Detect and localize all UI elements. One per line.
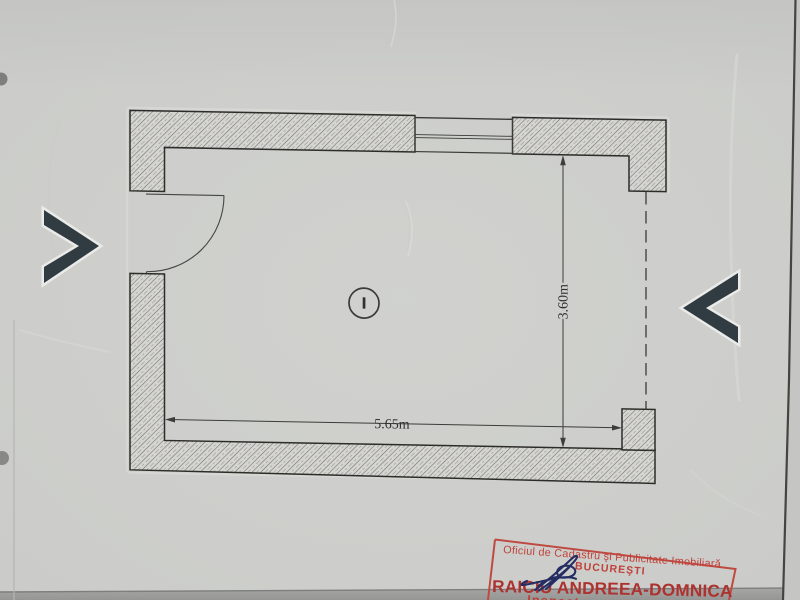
svg-text:3.60m: 3.60m <box>557 284 572 320</box>
svg-text:5.65m: 5.65m <box>374 417 409 433</box>
